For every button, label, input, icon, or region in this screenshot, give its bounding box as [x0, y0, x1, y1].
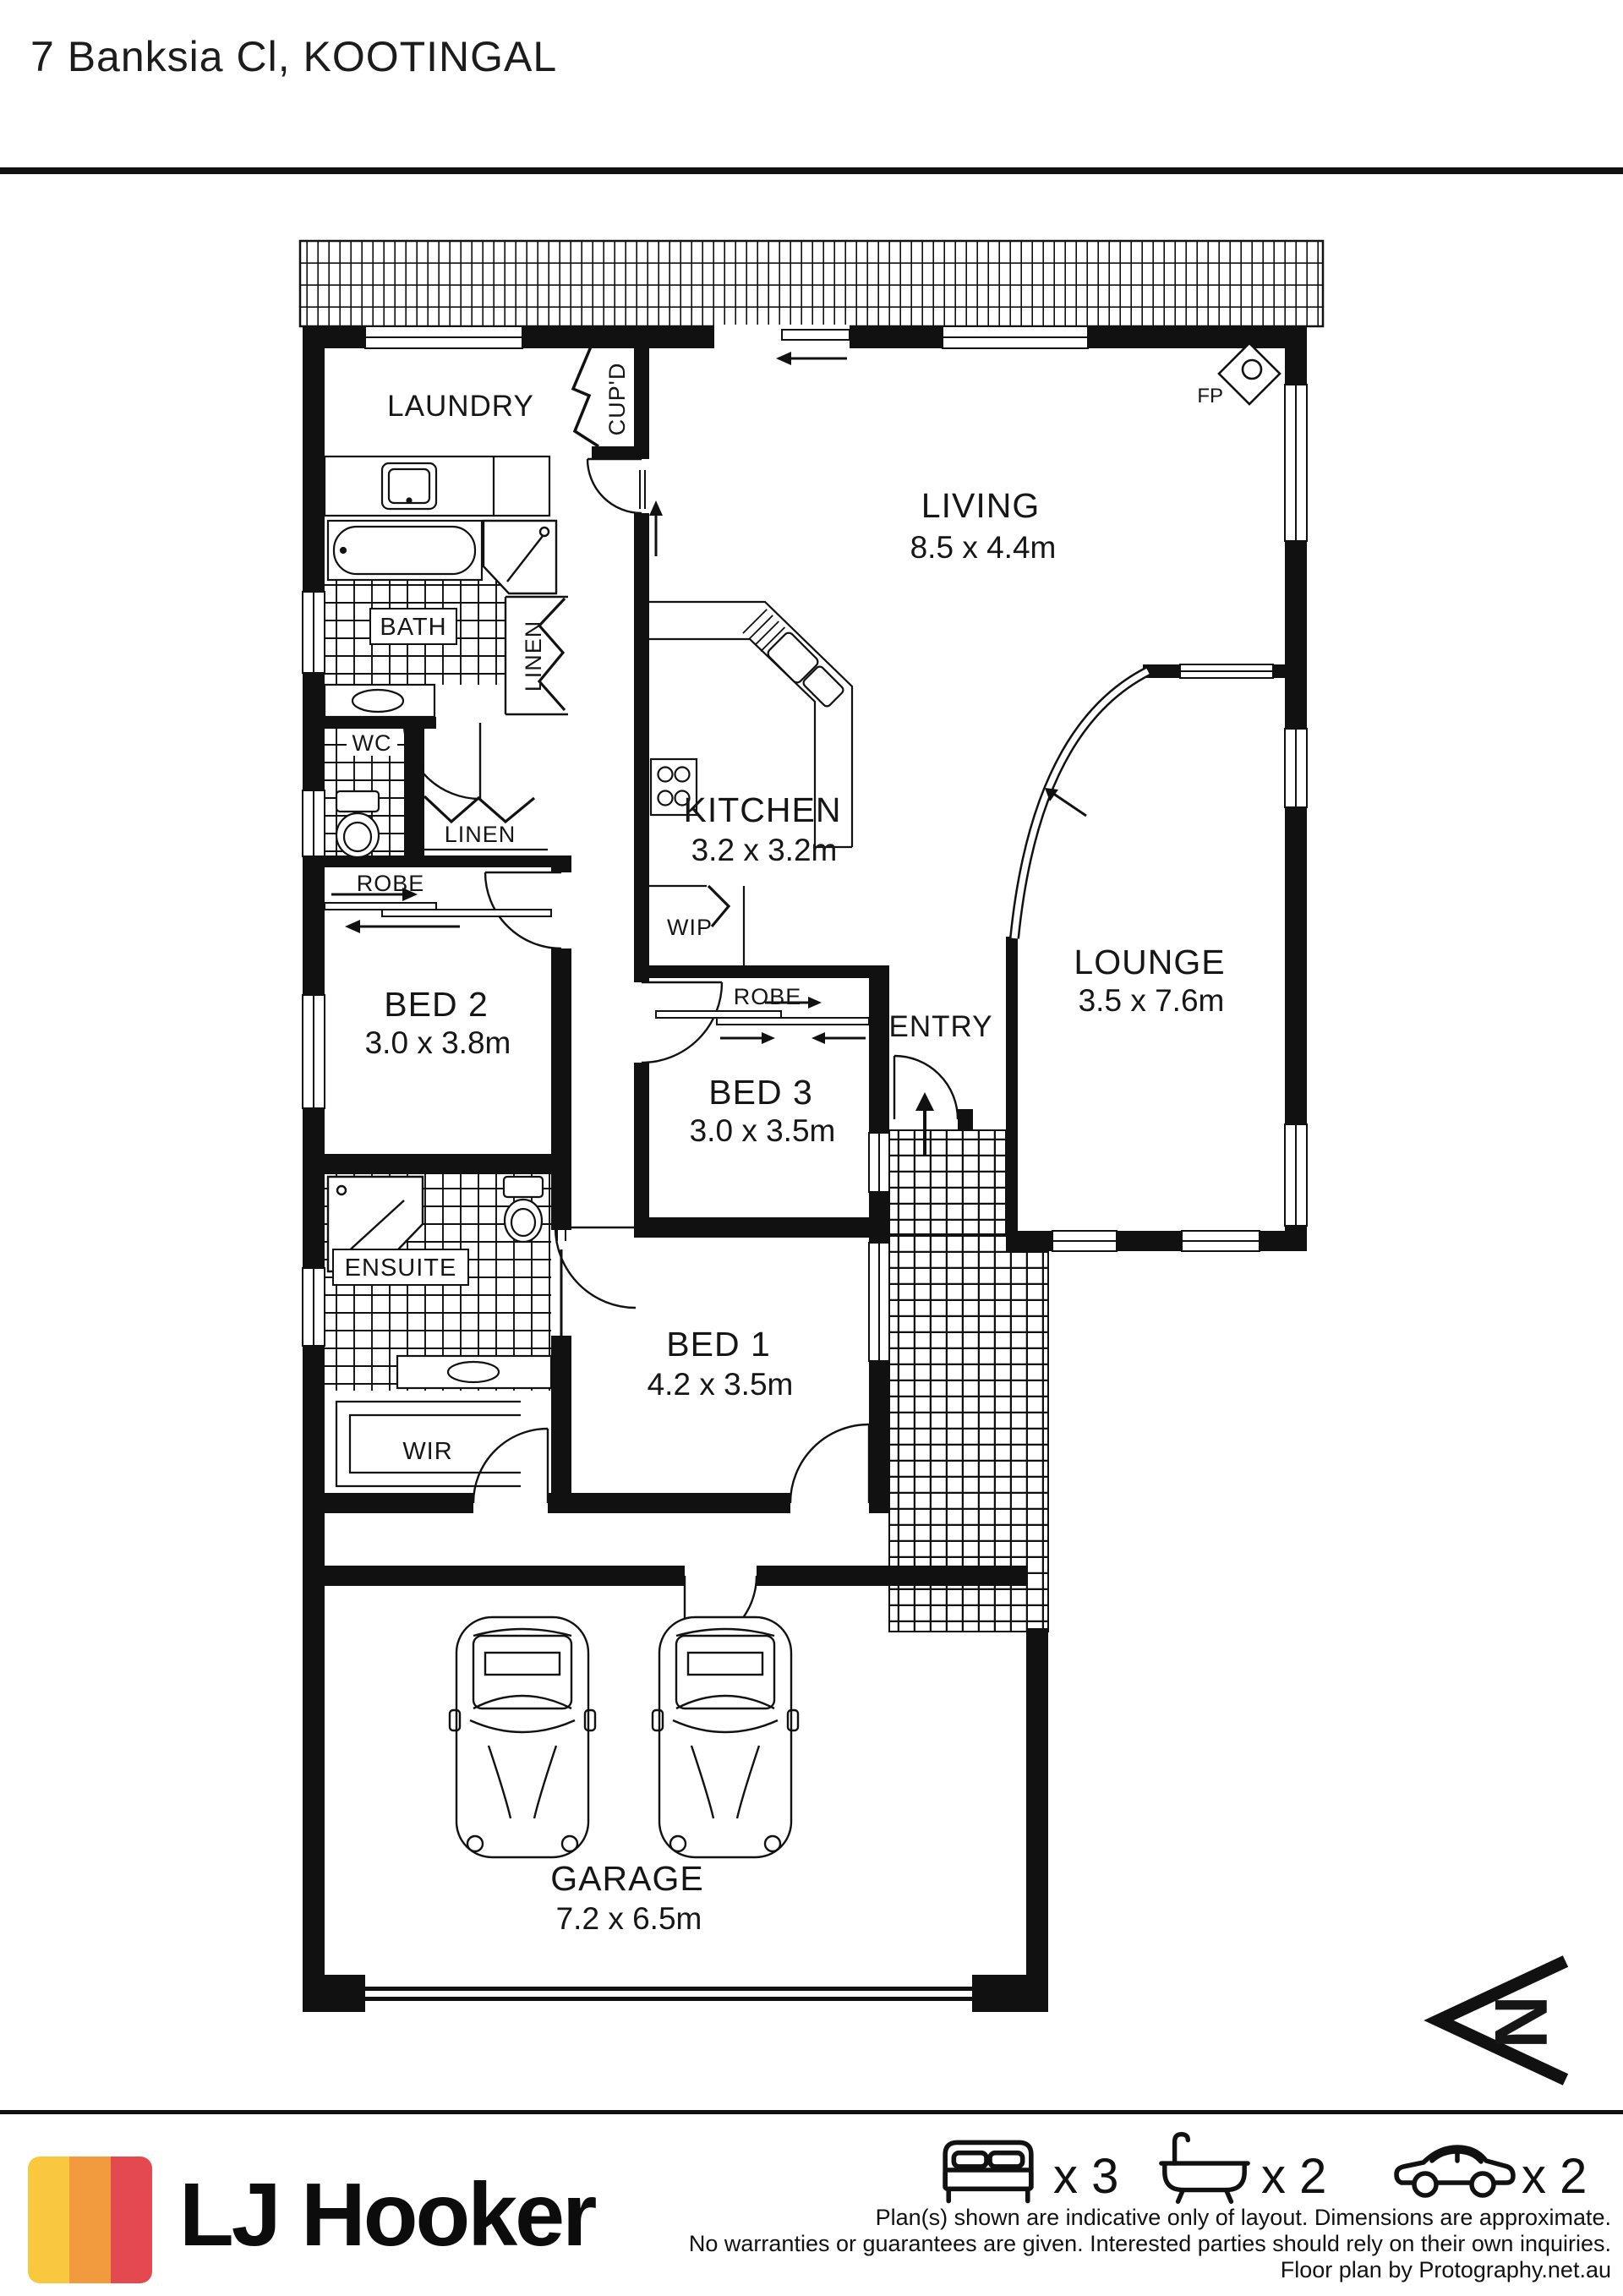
deck-area [300, 241, 1323, 326]
wall-robe2-top [303, 856, 551, 867]
wall-kitchen-left [634, 336, 649, 978]
room-dims-bed1: 4.2 x 3.5m [648, 1367, 794, 1402]
wall-wc-right [404, 729, 424, 856]
footer-rule [0, 2110, 1623, 2114]
wall-cupd-bottom [592, 446, 649, 459]
window [1052, 1231, 1117, 1251]
room-dims-lounge: 3.5 x 7.6m [1079, 983, 1225, 1018]
wall-lounge-bottom [1006, 1231, 1307, 1251]
window [303, 1268, 325, 1346]
wall-garage-post-left [303, 1975, 365, 2012]
room-label-entry: ENTRY [889, 1010, 993, 1043]
logo-stripe-red [111, 2157, 152, 2283]
room-label-laundry: LAUNDRY [387, 390, 534, 423]
disclaimer-line-3: Floor plan by Protography.net.au [689, 2257, 1611, 2283]
logo-stripe-orange [69, 2157, 111, 2283]
door-wir [473, 1429, 548, 1503]
window [943, 326, 1088, 348]
baths-count: x 2 [1261, 2152, 1326, 2201]
disclaimer-line-2: No warranties or guarantees are given. I… [689, 2231, 1611, 2257]
toilet-wc [336, 791, 379, 857]
room-label-kitchen: KITCHEN [684, 790, 842, 829]
room-dims-living: 8.5 x 4.4m [910, 530, 1057, 565]
laundry-bench [325, 456, 549, 516]
room-label-garage: GARAGE [550, 1859, 703, 1898]
wall-lounge-left [1006, 937, 1018, 1251]
room-label-cupd: CUP'D [604, 363, 630, 436]
wall-bed2-bottom [303, 1154, 571, 1174]
bath-vanity [325, 685, 434, 717]
lj-hooker-logo-text: LJ Hooker [179, 2164, 594, 2266]
room-label-robe-bed2: ROBE [357, 871, 425, 896]
toilet-ensuite [504, 1177, 543, 1242]
window [303, 995, 325, 1108]
room-label-bed2: BED 2 [384, 985, 489, 1024]
room-label-lounge: LOUNGE [1074, 943, 1225, 981]
lj-hooker-logo-mark [28, 2157, 152, 2283]
porch-area [889, 1130, 1048, 1632]
car-icon [1391, 2134, 1518, 2205]
cars-count: x 2 [1522, 2152, 1587, 2201]
room-label-linen-bath: LINEN [521, 620, 546, 692]
disclaimer: Plan(s) shown are indicative only of lay… [689, 2205, 1611, 2283]
bed-icon [937, 2132, 1040, 2210]
window [1285, 1124, 1307, 1226]
fireplace-icon [1219, 343, 1280, 404]
door-bed1 [790, 1424, 869, 1503]
window [1285, 385, 1307, 541]
ensuite-label-box: ENSUITE [333, 1249, 468, 1285]
window [303, 592, 325, 673]
room-dims-kitchen: 3.2 x 3.2m [691, 833, 838, 867]
wall-bed1-right [869, 965, 889, 1493]
disclaimer-line-1: Plan(s) shown are indicative only of lay… [689, 2205, 1611, 2231]
bath-icon [1155, 2125, 1254, 2208]
north-arrow-icon: N [1439, 1961, 1566, 2080]
room-label-wc: WC [352, 730, 392, 756]
window [365, 326, 522, 348]
room-label-bed3: BED 3 [708, 1073, 813, 1112]
wall-kitchen-bottom [634, 965, 889, 978]
wall-bed3-bottom [636, 1217, 889, 1238]
wall-vanity [303, 717, 436, 729]
ensuite-vanity [397, 1356, 551, 1388]
room-label-fp: FP [1197, 385, 1223, 407]
north-label: N [1479, 1995, 1563, 2049]
room-label-robe-bed3: ROBE [734, 984, 802, 1009]
room-label-bed1: BED 1 [666, 1325, 771, 1364]
garage-door-line1 [353, 1987, 982, 1991]
window [869, 1133, 889, 1192]
room-label-bath: BATH [380, 614, 446, 641]
bathtub [328, 521, 482, 580]
car-top-view [450, 1617, 595, 1857]
window [303, 790, 325, 856]
room-label-ensuite: ENSUITE [345, 1255, 457, 1282]
room-label-wip: WIP [667, 915, 713, 940]
logo-stripe-yellow [28, 2157, 69, 2283]
beds-count: x 3 [1053, 2152, 1118, 2201]
room-dims-bed3: 3.0 x 3.5m [690, 1113, 836, 1148]
wall-garage-right [1026, 1628, 1048, 2012]
floor-plan-drawing: LAUNDRY CUP'D LIVING 8.5 x 4.4m FP BATH … [0, 0, 1623, 2296]
wall-garage-top [303, 1566, 1026, 1586]
room-dims-garage: 7.2 x 6.5m [556, 1901, 702, 1936]
door-laundry [587, 459, 642, 513]
window [1285, 729, 1307, 807]
wc-label-box: WC [347, 729, 397, 756]
bath-label-box: BATH [370, 609, 456, 644]
garage-door-line2 [353, 1997, 982, 2001]
kitchen-sink [743, 610, 845, 708]
room-dims-bed2: 3.0 x 3.8m [365, 1025, 511, 1060]
window [1182, 1231, 1260, 1251]
floor-plan-page: 7 Banksia Cl, KOOTINGAL [0, 0, 1623, 2296]
door-bed3 [642, 982, 722, 1063]
car-top-view [653, 1617, 798, 1857]
curved-wall [1014, 671, 1148, 938]
window [869, 1243, 889, 1361]
cupboard-bifold [573, 341, 598, 446]
window [1180, 664, 1273, 678]
room-label-linen-hall: LINEN [445, 822, 516, 847]
room-label-wir: WIR [402, 1438, 452, 1465]
room-label-living: LIVING [921, 486, 1040, 525]
wall-entry-nub [958, 1109, 973, 1130]
